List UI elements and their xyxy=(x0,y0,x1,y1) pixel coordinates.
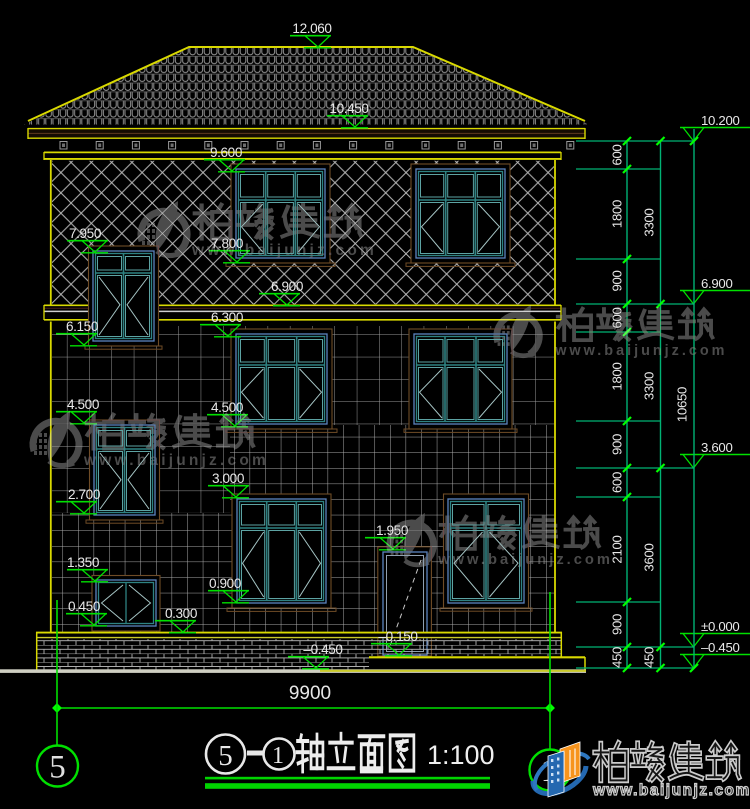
svg-text:www.baijunjz.com: www.baijunjz.com xyxy=(191,242,377,259)
svg-text:3300: 3300 xyxy=(642,208,657,236)
svg-text:10.450: 10.450 xyxy=(329,101,369,116)
svg-text:6.300: 6.300 xyxy=(211,310,244,325)
svg-text:12.060: 12.060 xyxy=(292,21,332,36)
svg-text:www.baijunjz.com: www.baijunjz.com xyxy=(554,343,727,359)
svg-text:600: 600 xyxy=(610,472,625,493)
svg-text:900: 900 xyxy=(610,434,625,455)
svg-text:600: 600 xyxy=(610,144,625,165)
svg-text:1800: 1800 xyxy=(610,362,625,390)
svg-text:900: 900 xyxy=(610,270,625,291)
svg-text:9900: 9900 xyxy=(289,683,331,704)
svg-text:5: 5 xyxy=(218,740,233,772)
svg-text:1800: 1800 xyxy=(610,200,625,228)
svg-text:0.900: 0.900 xyxy=(209,576,242,591)
svg-text:1.350: 1.350 xyxy=(67,555,100,570)
svg-text:4.500: 4.500 xyxy=(211,400,244,415)
svg-text:9.600: 9.600 xyxy=(210,145,243,160)
svg-text:3.600: 3.600 xyxy=(701,440,733,455)
svg-text:6.900: 6.900 xyxy=(271,279,304,294)
svg-text:10.200: 10.200 xyxy=(701,113,740,128)
svg-text:0.300: 0.300 xyxy=(165,606,198,621)
svg-text:1: 1 xyxy=(272,743,284,769)
svg-text:3300: 3300 xyxy=(642,372,657,400)
svg-text:10650: 10650 xyxy=(675,387,690,422)
svg-text:±0.000: ±0.000 xyxy=(701,619,739,634)
svg-text:450: 450 xyxy=(610,647,625,668)
svg-text:2.700: 2.700 xyxy=(68,487,101,502)
svg-text:6.900: 6.900 xyxy=(701,276,733,291)
svg-text:0.450: 0.450 xyxy=(68,599,101,614)
svg-text:www.baijunjz.com: www.baijunjz.com xyxy=(83,452,269,469)
svg-text:1:100: 1:100 xyxy=(427,740,495,770)
svg-text:–0.150: –0.150 xyxy=(378,629,418,644)
svg-text:4.500: 4.500 xyxy=(67,397,100,412)
svg-text:900: 900 xyxy=(610,614,625,635)
svg-text:www.baijunjz.com: www.baijunjz.com xyxy=(592,782,750,799)
svg-text:www.baijunjz.com: www.baijunjz.com xyxy=(437,552,613,568)
svg-text:7.950: 7.950 xyxy=(69,226,102,241)
svg-text:3.000: 3.000 xyxy=(212,471,245,486)
svg-text:450: 450 xyxy=(642,647,657,668)
svg-text:–0.450: –0.450 xyxy=(303,642,343,657)
svg-text:6.150: 6.150 xyxy=(66,319,99,334)
svg-text:5: 5 xyxy=(49,750,66,786)
svg-text:–0.450: –0.450 xyxy=(701,640,740,655)
svg-text:3600: 3600 xyxy=(642,543,657,571)
